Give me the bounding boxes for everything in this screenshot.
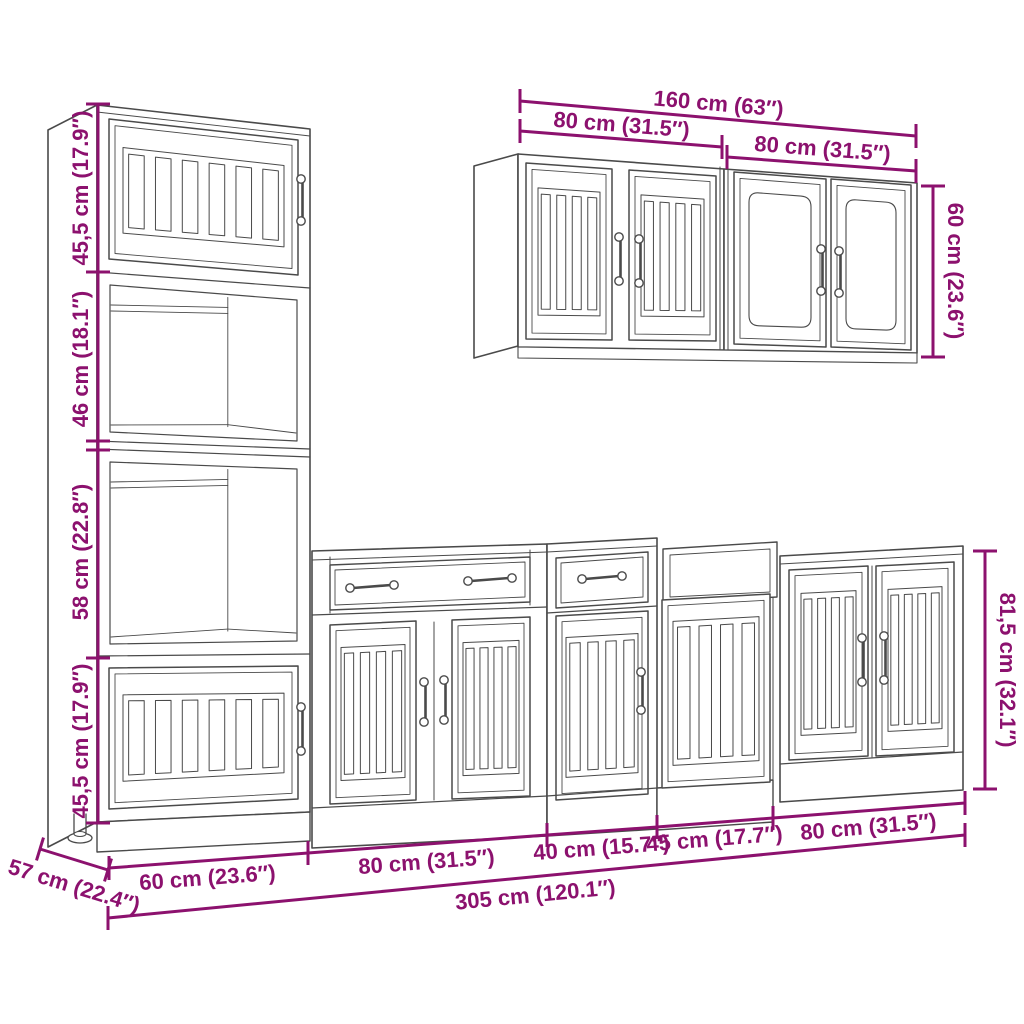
- kitchen-cabinet-dimension-diagram: 160 cm (63″) 80 cm (31.5″) 80 cm (31.5″)…: [0, 0, 1024, 1024]
- dim-label-total: 305 cm (120.1″): [454, 874, 617, 914]
- dim-label-depth: 57 cm (22.4″): [5, 854, 143, 918]
- wall-cabinets-drawing: [474, 154, 917, 363]
- dim-label-tall-s3: 58 cm (22.8″): [68, 484, 93, 621]
- base-cabinet-40-drawing: [547, 538, 657, 836]
- dim-label-tall-s4: 45,5 cm (17.9″): [68, 664, 93, 819]
- dim-label-base-height: 81,5 cm (32.1″): [995, 593, 1020, 748]
- cabinet-line-art: [48, 105, 963, 852]
- dim-label-tall-s2: 46 cm (18.1″): [68, 291, 93, 428]
- base-cabinet-80-right-drawing: [780, 546, 963, 802]
- dim-label-wall-left: 80 cm (31.5″): [553, 107, 691, 143]
- wall-height-dimension: [921, 186, 945, 357]
- dim-label-tall-s1: 45,5 cm (17.9″): [68, 111, 93, 266]
- base-cabinet-80-left-drawing: [312, 544, 547, 848]
- base-height-dimension: [973, 551, 997, 789]
- dim-label-wall-height: 60 cm (23.6″): [943, 203, 968, 340]
- base-cabinet-45-drawing: [657, 594, 773, 830]
- diagram-canvas: 160 cm (63″) 80 cm (31.5″) 80 cm (31.5″)…: [0, 0, 1024, 1024]
